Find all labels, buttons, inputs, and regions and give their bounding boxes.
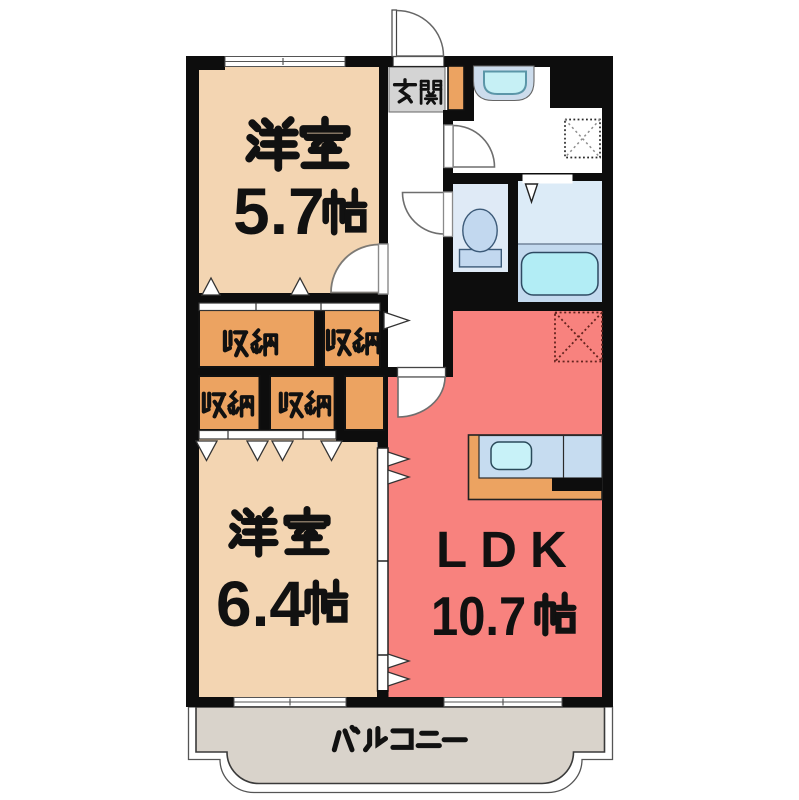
svg-text:10.7: 10.7 bbox=[431, 586, 526, 647]
svg-text:6.4: 6.4 bbox=[216, 568, 305, 640]
svg-text:LDK: LDK bbox=[436, 521, 580, 578]
svg-text:5.7: 5.7 bbox=[233, 174, 325, 248]
